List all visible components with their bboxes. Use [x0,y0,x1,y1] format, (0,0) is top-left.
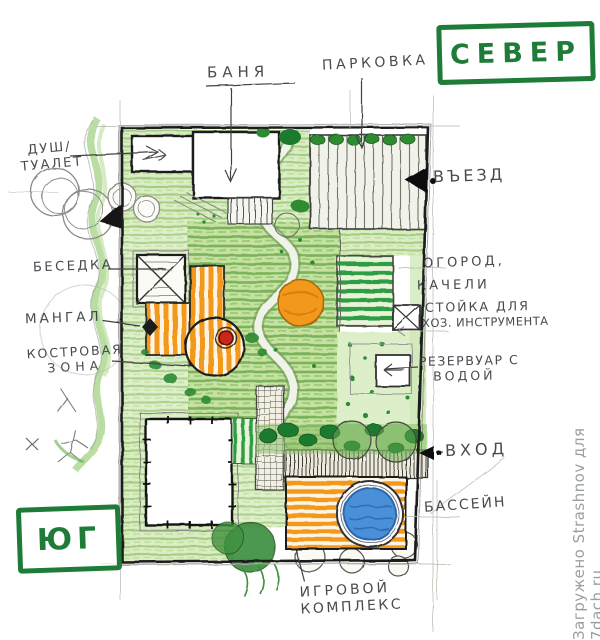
label-banya: БАНЯ [207,62,270,81]
label-vhod: ВХОД [445,439,509,460]
patio-circle [278,280,324,326]
label-hoz-instrument: ХОЗ. ИНСТРУМЕНТА [422,315,549,331]
fire-pit [219,331,233,345]
label-stoyka: СТОЙКА ДЛЯ [425,298,530,315]
label-vezd: ВЪЕЗД [433,165,506,187]
bottom-lawn-square [140,413,238,531]
label-mangal: МАНГАЛ [25,309,102,328]
label-dush-tualet: ДУШ/ ТУАЛЕТ [19,138,84,175]
compass-north-label: СЕВЕР [450,36,583,70]
label-besedka: БЕСЕДКА [33,258,114,276]
garden-plan-sketch: БАНЯ ПАРКОВКА ВЪЕЗД ДУШ/ ТУАЛЕТ БЕСЕДКА … [0,0,600,640]
label-rezervuar-line2: ВОДОЙ [433,367,520,384]
steps [228,198,272,224]
fire-pit-deck [186,318,244,376]
pool [337,481,403,547]
compass-north-box: СЕВЕР [436,21,596,85]
tool-rack-square [393,305,420,330]
label-rezervuar: РЕЗЕРВУАР С ВОДОЙ [419,352,520,384]
watermark: Загружено Strashnov для 7dach.ru [570,366,600,640]
house-building [132,136,193,172]
label-rezervuar-line1: РЕЗЕРВУАР С [419,352,520,369]
label-igrovoy-kompleks: ИГРОВОЙ КОМПЛЕКС [299,579,403,618]
gazebo [133,251,189,307]
compass-south-label: ЮГ [36,520,102,557]
label-ogorod: ОГОРОД, [423,254,505,272]
compass-south-box: ЮГ [16,504,122,574]
hedge-strip [232,418,256,464]
label-kostrovaya-zona: КОСТРОВАЯ ЗОНА [26,342,124,377]
label-kacheli: КАЧЕЛИ [417,277,490,294]
